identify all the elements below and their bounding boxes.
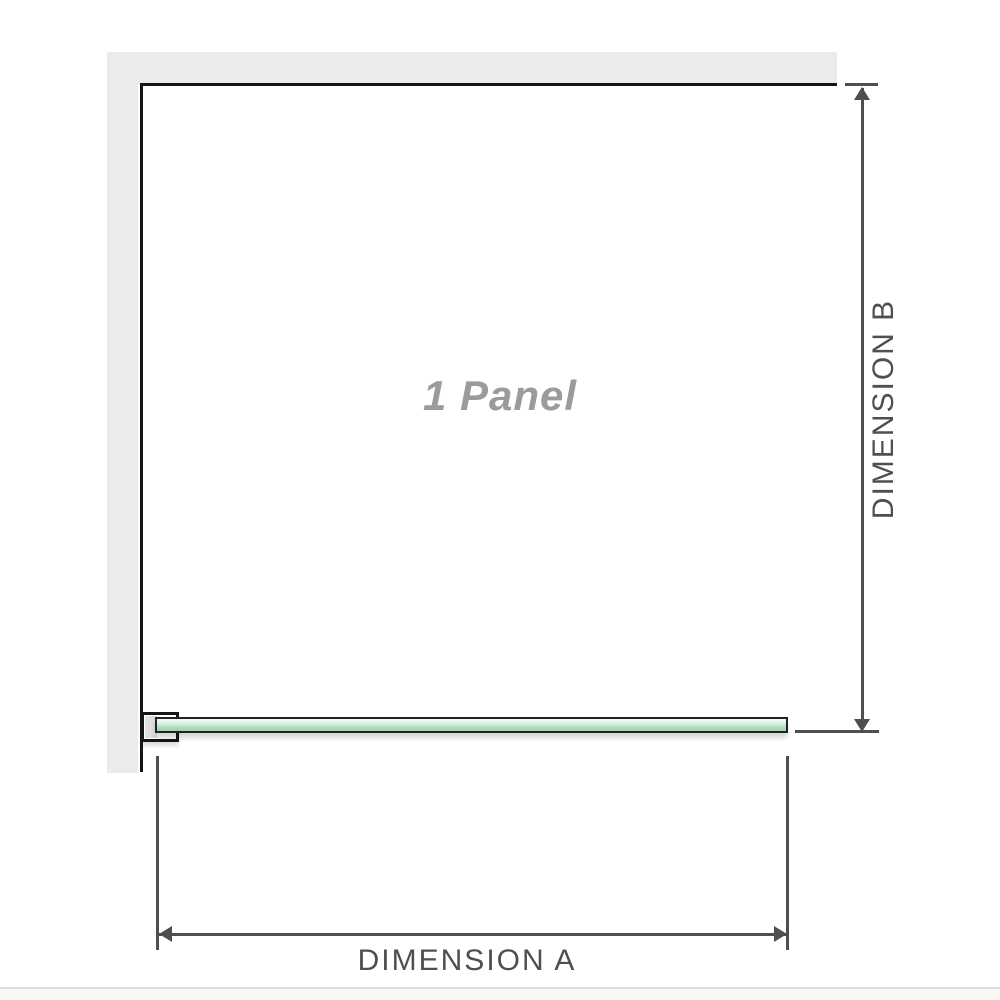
arrow-down-icon [854,719,870,732]
dimension-a-extension-right [786,756,789,950]
wall-top [107,52,837,85]
dimension-a-extension-left [156,756,159,950]
arrow-left-icon [159,926,172,942]
bottom-strip [0,989,1000,1000]
arrow-up-icon [854,87,870,100]
panel-label: 1 Panel [350,372,650,420]
dimension-b-line [861,88,864,729]
wall-left [107,52,138,773]
dimension-b-tick-top [845,83,878,86]
dimension-b-label: DIMENSION B [867,259,901,559]
dimension-a-label: DIMENSION A [317,944,617,978]
enclosure-left-line [140,83,143,772]
dimension-a-line [158,933,788,936]
arrow-right-icon [774,926,787,942]
enclosure-top-line [140,83,837,86]
glass-panel [155,717,788,733]
panel-dimension-diagram: 1 Panel DIMENSION B DIMENSION A [0,0,1000,1000]
